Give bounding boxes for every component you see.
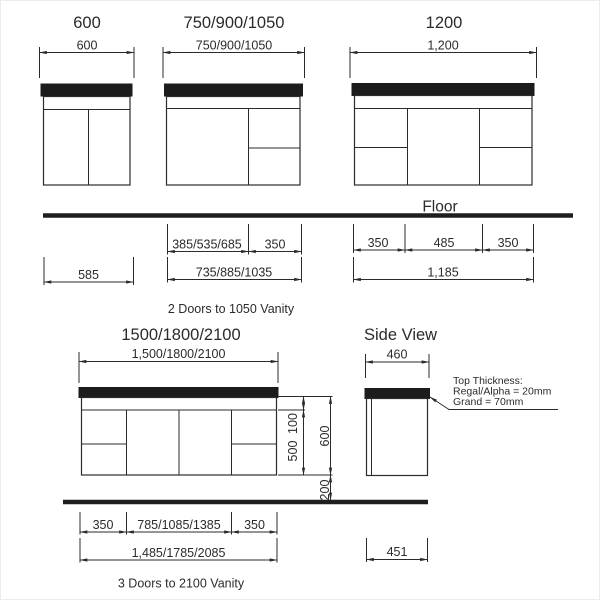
- cab2100-title: 1500/1800/2100: [121, 326, 240, 344]
- technical-drawing-canvas: 600 600 750/900/1050 750/900/1050 1200 1…: [1, 1, 600, 601]
- cab1200-right-dim: 350: [498, 236, 519, 250]
- dims-under-2100: 350 785/1085/1385 350 1,485/1785/2085: [80, 512, 277, 563]
- cab1200-title: 1200: [426, 14, 463, 32]
- dims-under-750-1050: 385/535/685 350 735/885/1035: [168, 224, 302, 283]
- front-view-750-1050-vanity: 750/900/1050 750/900/1050: [163, 14, 305, 185]
- cab1200-mid-dim: 485: [434, 236, 455, 250]
- side-bottom-width-dim: 451: [387, 545, 408, 559]
- front-view-1500-2100-vanity: 1500/1800/2100 1,500/1800/2100: [79, 326, 278, 475]
- cab750-width-dim: 750/900/1050: [196, 39, 273, 53]
- cab600-total-dim: 585: [78, 268, 99, 282]
- cab2100-mid-dim: 785/1085/1385: [137, 518, 220, 532]
- dims-under-600: 585: [44, 257, 134, 285]
- front-view-600-vanity: 600 600: [40, 14, 135, 185]
- benchtop: [79, 388, 278, 398]
- benchtop: [41, 84, 132, 96]
- dims-under-1200: 350 485 350 1,185: [354, 224, 534, 283]
- floor-upper: Floor: [43, 199, 573, 216]
- benchtop: [352, 84, 534, 96]
- side-view: Side View 460 Top Thickness: Regal/Alpha…: [364, 326, 558, 476]
- leader-line: [430, 397, 449, 410]
- cab1200-total-dim: 1,185: [427, 266, 458, 280]
- side-view-title: Side View: [364, 326, 437, 344]
- cab2100-total-dim: 1,485/1785/2085: [132, 546, 226, 560]
- note-grand: Grand = 70mm: [453, 396, 524, 408]
- cab750-title: 750/900/1050: [184, 14, 285, 32]
- height-100-dim: 100: [286, 413, 300, 434]
- dims-under-side-view: 451: [367, 538, 428, 562]
- vanity-drawing-sheet: 600 600 750/900/1050 750/900/1050 1200 1…: [0, 0, 600, 600]
- cab2100-width-dim: 1,500/1800/2100: [132, 347, 226, 361]
- cab1200-left-dim: 350: [368, 236, 389, 250]
- cab600-title: 600: [73, 14, 101, 32]
- cab1200-width-dim: 1,200: [427, 39, 458, 53]
- cab2100-left-dim: 350: [93, 518, 114, 532]
- carcass-outline: [167, 97, 301, 186]
- carcass-side-outline: [367, 399, 428, 476]
- floor-label: Floor: [422, 199, 457, 216]
- cab2100-right-dim: 350: [244, 518, 265, 532]
- cab750-drawers-dim: 350: [265, 238, 286, 252]
- benchtop: [165, 84, 303, 96]
- cab750-door-dim: 385/535/685: [172, 238, 242, 252]
- height-dims: 100 500 600 200: [278, 397, 333, 501]
- height-600-dim: 600: [318, 426, 332, 447]
- height-200-dim: 200: [318, 480, 332, 501]
- caption-2-doors: 2 Doors to 1050 Vanity: [168, 302, 295, 316]
- side-top-width-dim: 460: [387, 348, 408, 362]
- benchtop-side: [365, 389, 430, 399]
- cab750-total-dim: 735/885/1035: [196, 266, 273, 280]
- caption-3-doors: 3 Doors to 2100 Vanity: [118, 577, 245, 591]
- height-500-dim: 500: [286, 441, 300, 462]
- front-view-1200-vanity: 1200 1,200: [350, 14, 537, 185]
- cab600-width-dim: 600: [77, 39, 98, 53]
